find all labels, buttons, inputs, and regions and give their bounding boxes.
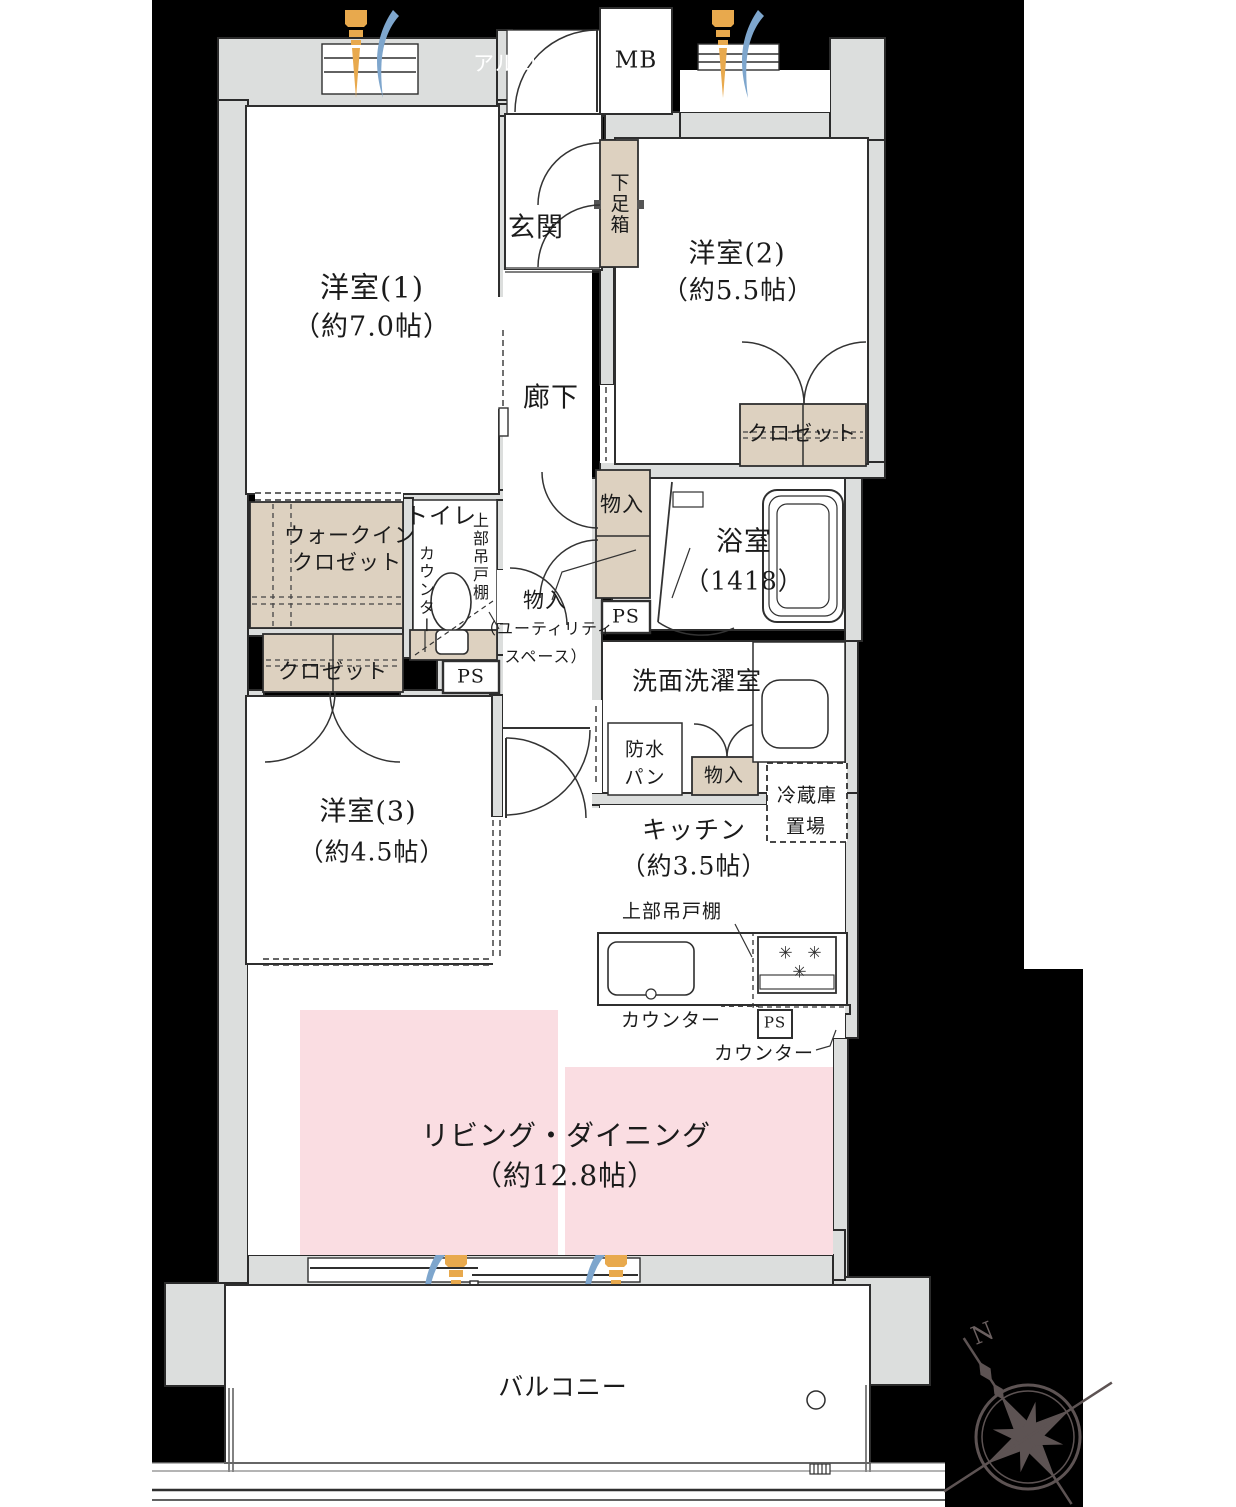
meter-box-label: MB xyxy=(615,50,657,73)
pan-label-line1: 防水 xyxy=(625,741,665,760)
toilet-icon xyxy=(431,573,471,654)
hall-storage xyxy=(596,470,650,598)
shoebox-label: 下足箱 xyxy=(609,173,628,236)
bath-size-label: （1418） xyxy=(684,569,804,594)
hall-storage-label: 物入 xyxy=(600,495,644,516)
kitchen-counter1-label: カウンター xyxy=(621,1012,721,1031)
closet-room2-label: クロゼット xyxy=(747,424,857,445)
toilet-counter-label: カウンター xyxy=(417,545,433,635)
room2-name-label: 洋室(2) xyxy=(688,241,785,268)
closet-room3-label: クロゼット xyxy=(278,662,388,683)
fridge-label-line1: 冷蔵庫 xyxy=(777,787,837,806)
corridor-label: 廊下 xyxy=(523,385,579,412)
stove-burner-icon: ✳ xyxy=(778,946,793,963)
floor-plan: アルコーブ MB 玄関 下足箱 洋室(1) （約7.0帖） 洋室(2) （約5.… xyxy=(0,0,1236,1507)
room3-name-label: 洋室(3) xyxy=(319,799,416,826)
fridge-label-line2: 置場 xyxy=(786,818,826,837)
vanity-icon xyxy=(753,642,845,762)
utility-storage-label-line2: （ユーティリティ xyxy=(480,621,614,637)
ps1-label: PS xyxy=(457,668,485,687)
stove-burner-icon: ✳ xyxy=(807,946,822,963)
living-name-label: リビング・ダイニング xyxy=(421,1122,711,1150)
balcony-hook-icon xyxy=(807,1391,825,1409)
kitchen-cabinet-label: 上部吊戸棚 xyxy=(622,903,722,922)
sink-icon xyxy=(608,942,694,995)
living-size-label: （約12.8帖） xyxy=(474,1162,656,1190)
washroom-label: 洗面洗濯室 xyxy=(632,669,762,694)
ps2-label: PS xyxy=(612,608,640,627)
toilet-cabinet-label: 上部吊戸棚 xyxy=(471,512,487,602)
utility-storage-label-line1: 物入 xyxy=(523,591,567,612)
pan-label-line2: パン xyxy=(625,769,666,788)
room2-size-label: （約5.5帖） xyxy=(662,278,814,304)
kitchen-size-label: （約3.5帖） xyxy=(621,854,768,879)
room1-name-label: 洋室(1) xyxy=(320,274,424,303)
balcony-label: バルコニー xyxy=(498,1375,628,1400)
ps3-label: PS xyxy=(764,1016,786,1031)
kitchen-counter2-label: カウンター xyxy=(714,1045,814,1064)
toilet-label: トイレ xyxy=(405,506,477,529)
utility-storage-label-line3: スペース） xyxy=(504,649,587,665)
wic-label-line1: ウォークイン xyxy=(284,526,416,547)
room3-size-label: （約4.5帖） xyxy=(299,840,446,865)
room1-size-label: （約7.0帖） xyxy=(293,314,451,341)
wic-label-line2: クロゼット xyxy=(292,553,402,574)
alcove-label: アルコーブ xyxy=(473,54,581,75)
washroom-storage-label: 物入 xyxy=(704,767,744,786)
stove-burner-icon: ✳ xyxy=(792,965,807,982)
kitchen-name-label: キッチン xyxy=(642,818,746,843)
bath-name-label: 浴室 xyxy=(716,529,772,556)
genkan-label: 玄関 xyxy=(508,215,564,242)
drain-icon xyxy=(810,1464,830,1474)
